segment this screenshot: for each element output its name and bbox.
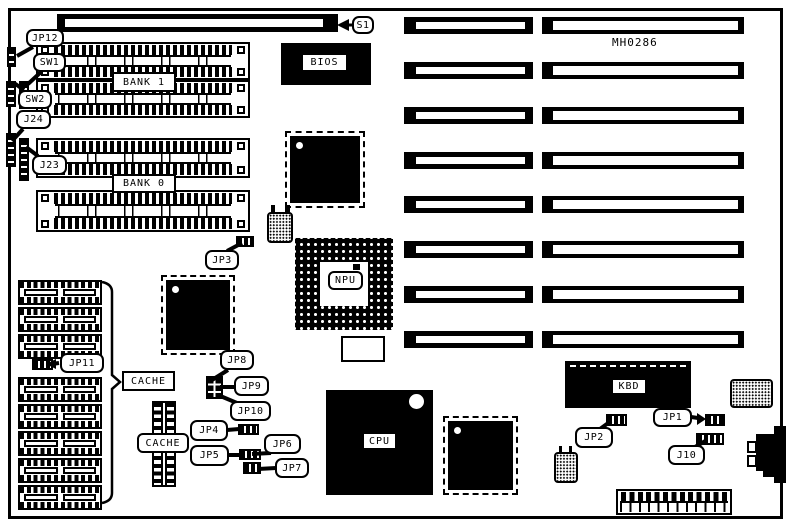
callout-jp11: JP11 <box>60 353 104 373</box>
part-number: MH0286 <box>612 36 658 49</box>
cpu-label: CPU <box>362 432 397 450</box>
bank1-text: BANK 1 <box>123 77 165 88</box>
jp4-label: JP4 <box>199 425 219 436</box>
callout-jp7: JP7 <box>275 458 309 478</box>
j24-label: J24 <box>24 114 44 125</box>
motherboard-diagram: S1 MH0286 BIOS NPU CPU KBD CACHE <box>0 0 791 527</box>
callout-jp4: JP4 <box>190 420 228 441</box>
callout-jp10: JP10 <box>230 401 271 421</box>
callout-s1: S1 <box>352 16 374 34</box>
kbd-label: KBD <box>611 378 647 395</box>
bank1-label: BANK 1 <box>112 72 176 92</box>
cache-label: CACHE <box>122 371 175 391</box>
npu-text: NPU <box>335 275 356 286</box>
npu-label: NPU <box>328 271 363 290</box>
sw2-label: SW2 <box>25 94 45 105</box>
jp8-label: JP8 <box>227 355 247 366</box>
jp6-label: JP6 <box>273 439 293 450</box>
sw1-label: SW1 <box>40 57 60 68</box>
jp3-label: JP3 <box>212 255 232 266</box>
j10-label: J10 <box>677 450 697 461</box>
callout-j23: J23 <box>32 155 67 175</box>
jp1-label: JP1 <box>663 412 683 423</box>
bios-text: BIOS <box>310 57 338 68</box>
s1-label: S1 <box>356 20 369 31</box>
jp5-label: JP5 <box>200 450 220 461</box>
callout-jp5: JP5 <box>190 445 229 466</box>
jp7-label: JP7 <box>282 463 302 474</box>
cache-secondary-text: CACHE <box>145 438 180 449</box>
callout-sw2: SW2 <box>18 90 52 109</box>
jp12-label: JP12 <box>32 33 58 44</box>
bank0-text: BANK 0 <box>123 178 165 189</box>
j23-label: J23 <box>40 160 60 171</box>
callout-jp12: JP12 <box>26 29 64 47</box>
bios-label: BIOS <box>301 53 348 72</box>
callout-j10: J10 <box>668 445 705 465</box>
callout-jp9: JP9 <box>234 376 269 396</box>
jp2-label: JP2 <box>584 432 604 443</box>
cpu-text: CPU <box>369 436 390 447</box>
callout-sw1: SW1 <box>33 53 66 72</box>
callout-jp2: JP2 <box>575 427 613 448</box>
callout-jp1: JP1 <box>653 408 692 427</box>
callout-jp6: JP6 <box>264 434 301 454</box>
jp11-label: JP11 <box>69 358 95 369</box>
jp10-label: JP10 <box>237 406 263 417</box>
cache-label-secondary: CACHE <box>137 433 189 453</box>
jp9-label: JP9 <box>242 381 262 392</box>
bank0-label: BANK 0 <box>112 174 176 193</box>
cache-brace <box>102 282 120 503</box>
kbd-text: KBD <box>618 381 639 392</box>
callout-jp8: JP8 <box>220 350 254 370</box>
callout-j24: J24 <box>16 110 51 129</box>
callout-jp3: JP3 <box>205 250 239 270</box>
cache-text: CACHE <box>131 376 166 387</box>
